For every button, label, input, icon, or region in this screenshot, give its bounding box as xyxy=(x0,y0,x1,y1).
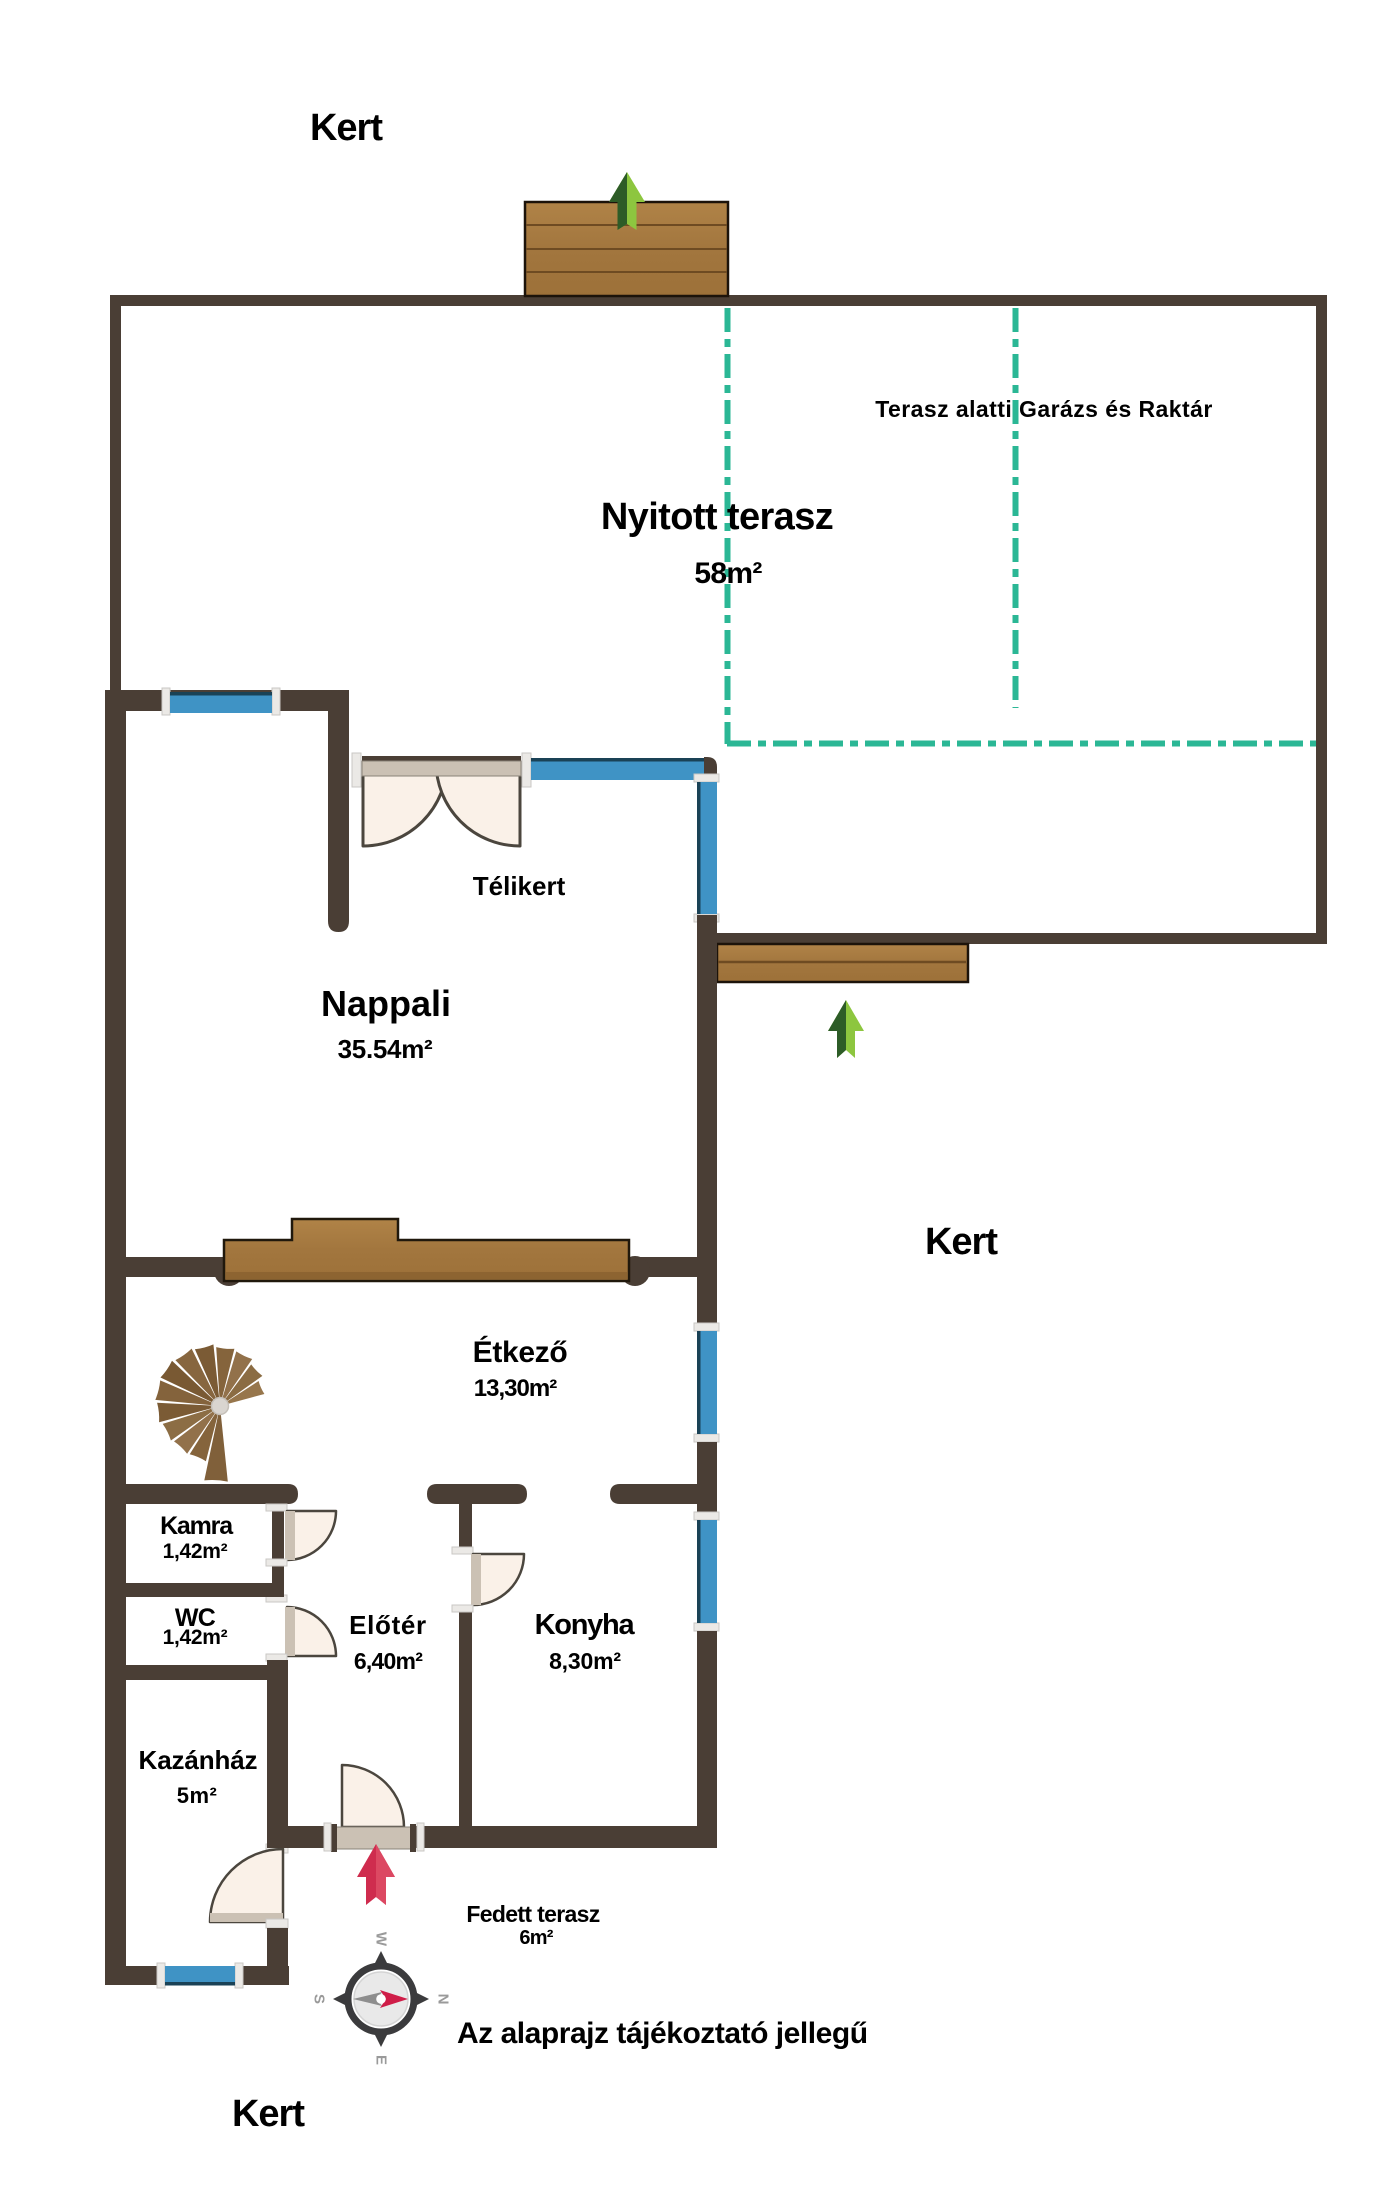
svg-text:W: W xyxy=(373,1932,390,1947)
svg-text:5m²: 5m² xyxy=(177,1783,217,1808)
svg-text:8,30m²: 8,30m² xyxy=(549,1648,621,1674)
svg-text:Nyitott terasz: Nyitott terasz xyxy=(601,496,833,538)
svg-text:1,42m²: 1,42m² xyxy=(163,1626,228,1649)
svg-text:Nappali: Nappali xyxy=(321,983,451,1024)
svg-text:Kert: Kert xyxy=(232,2093,305,2135)
svg-text:Kert: Kert xyxy=(310,107,383,149)
svg-text:Télikert: Télikert xyxy=(473,871,566,901)
svg-text:Terasz alatti Garázs és Raktár: Terasz alatti Garázs és Raktár xyxy=(875,396,1213,422)
svg-text:Előtér: Előtér xyxy=(349,1610,427,1640)
svg-text:58m²: 58m² xyxy=(694,557,762,590)
svg-text:6,40m²: 6,40m² xyxy=(354,1648,423,1674)
svg-text:6m²: 6m² xyxy=(519,1927,553,1949)
svg-text:Konyha: Konyha xyxy=(535,1609,636,1641)
svg-text:S: S xyxy=(311,1994,328,2004)
svg-text:Fedett terasz: Fedett terasz xyxy=(466,1901,599,1927)
svg-text:Étkező: Étkező xyxy=(473,1335,568,1369)
svg-text:35.54m²: 35.54m² xyxy=(338,1034,433,1064)
svg-text:1,42m²: 1,42m² xyxy=(163,1540,228,1563)
svg-text:Kert: Kert xyxy=(925,1221,998,1263)
svg-text:Az alaprajz tájékoztató jelleg: Az alaprajz tájékoztató jellegű xyxy=(457,2017,868,2050)
svg-text:13,30m²: 13,30m² xyxy=(474,1375,557,1402)
svg-text:Kamra: Kamra xyxy=(160,1512,234,1540)
svg-text:Kazánház: Kazánház xyxy=(139,1745,258,1775)
svg-text:N: N xyxy=(435,1994,452,2005)
svg-text:E: E xyxy=(373,2055,390,2065)
